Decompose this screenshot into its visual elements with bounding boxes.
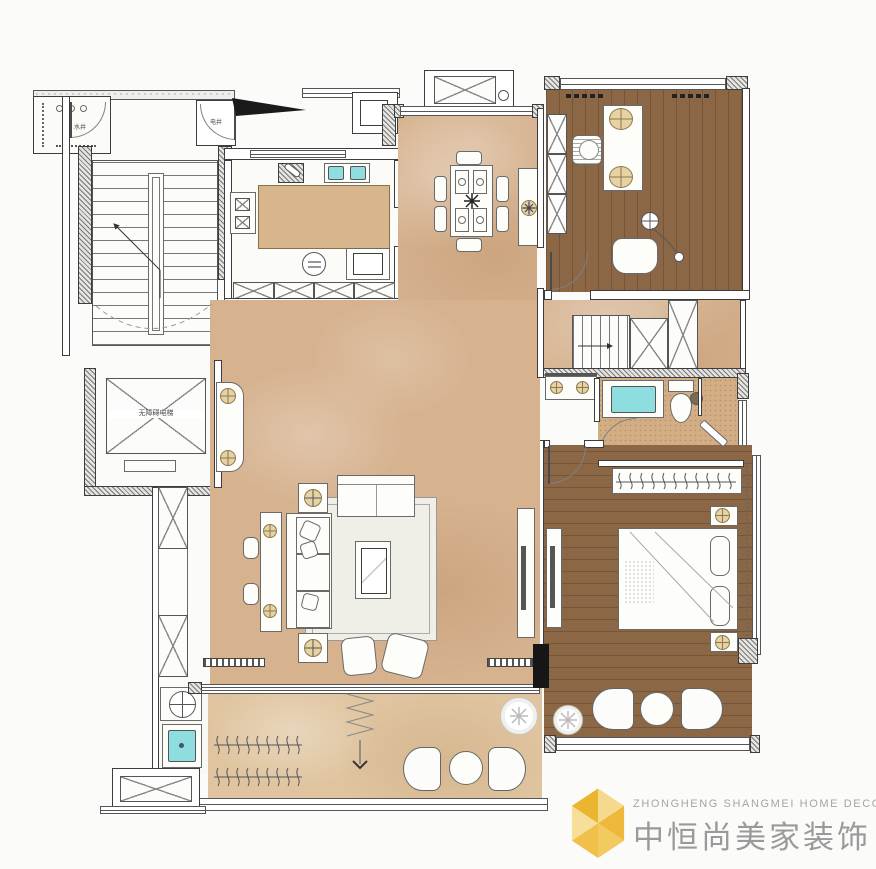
inner-hallway xyxy=(540,300,750,375)
wardrobe xyxy=(612,468,742,494)
dining-study-wall xyxy=(537,108,544,248)
dining-chair xyxy=(456,238,482,252)
placemat xyxy=(455,170,469,194)
bay-armchair xyxy=(681,688,723,730)
logo-diamond-icon xyxy=(569,786,627,864)
bedroom-wall xyxy=(750,735,760,753)
stairwell xyxy=(92,160,218,346)
loveseat-divider xyxy=(376,485,377,516)
study-wardrobe xyxy=(547,194,567,234)
bedroom-top-wall xyxy=(598,460,744,467)
storage-cabinet-door xyxy=(158,487,188,549)
master-bedroom xyxy=(536,440,760,755)
basin-icon xyxy=(550,381,563,394)
placemat xyxy=(455,208,469,232)
study-wardrobe xyxy=(547,114,567,154)
bathroom-partition xyxy=(594,378,600,422)
structural-column xyxy=(533,644,549,688)
flower-plant-icon xyxy=(553,705,583,735)
study-window xyxy=(560,78,726,90)
plant-icon xyxy=(263,604,277,618)
exterior-sill xyxy=(100,806,206,814)
curtain-box xyxy=(487,658,533,667)
dining-chair xyxy=(434,206,447,232)
elevator-door xyxy=(124,460,176,472)
ac-fan-icon xyxy=(498,90,509,101)
stool xyxy=(243,583,259,605)
plant-icon xyxy=(609,108,633,130)
unit-entry-door-leaf xyxy=(234,104,236,140)
lounge-chair xyxy=(403,747,441,791)
placemat xyxy=(473,208,487,232)
logo-text-en: ZHONGHENG SHANGMEI HOME DECORATION xyxy=(633,798,876,810)
refrigerator xyxy=(346,248,390,280)
study-bottom-wall xyxy=(590,290,750,300)
sofa xyxy=(286,513,332,629)
lamp-base-icon xyxy=(674,252,684,262)
plate-icon xyxy=(476,178,484,186)
living-hall-wall xyxy=(537,288,544,378)
drain-icon xyxy=(179,743,184,748)
ac-unit xyxy=(434,76,496,104)
floor-plan-canvas: 水井 电井 无障碍电梯 xyxy=(0,0,876,869)
dining-room xyxy=(398,106,540,302)
placemat xyxy=(473,170,487,194)
balcony-table xyxy=(449,751,483,785)
floor-lamp-icon xyxy=(641,212,659,230)
toilet-tank xyxy=(668,380,694,392)
sliding-door-track xyxy=(200,684,540,694)
dining-chair xyxy=(496,206,509,232)
balcony xyxy=(150,680,548,812)
storage-cabinet-door xyxy=(158,615,188,677)
bath-wall xyxy=(737,373,749,399)
desk-chair xyxy=(572,135,602,165)
loveseat-back xyxy=(338,476,414,485)
double-basin-vanity xyxy=(545,376,597,400)
exterior-wall xyxy=(62,96,70,356)
logo-text-cn: 中恒尚美家装饰 xyxy=(633,812,871,857)
laundry-sink xyxy=(162,724,202,768)
kitchen-window xyxy=(250,150,346,158)
stool xyxy=(243,537,259,559)
curtain-box xyxy=(203,658,265,667)
sink-basin xyxy=(328,166,344,180)
kitchen xyxy=(224,148,400,306)
common-corridor: 水井 电井 无障碍电梯 xyxy=(30,86,235,496)
plate-icon xyxy=(476,216,484,224)
washbasin-counter xyxy=(602,380,664,418)
tv-cabinet xyxy=(517,508,535,638)
dining-chair xyxy=(496,176,509,202)
bedroom-top-wall xyxy=(584,440,604,448)
plant-icon xyxy=(304,489,322,507)
living-room xyxy=(210,300,540,690)
pillow xyxy=(710,536,730,576)
bedroom-bay-window xyxy=(556,737,750,751)
basin-oval xyxy=(611,386,656,413)
corridor-door-leaf xyxy=(70,102,72,138)
ac-unit xyxy=(120,776,192,802)
study-wardrobe xyxy=(547,154,567,194)
hall-closet xyxy=(630,318,668,370)
bedroom-side-window xyxy=(752,455,761,655)
bay-table xyxy=(640,692,674,726)
loveseat xyxy=(337,475,415,517)
kitchen-island xyxy=(258,185,390,249)
plant-icon xyxy=(715,508,730,523)
stamp-text-mark xyxy=(308,266,321,268)
lounge-chair xyxy=(488,747,526,791)
bay-armchair xyxy=(592,688,634,730)
study-door-leaf xyxy=(550,252,552,290)
plate-icon xyxy=(458,216,466,224)
interior-staircase xyxy=(572,315,630,371)
cutting-board xyxy=(278,163,304,183)
burner-icon xyxy=(235,198,250,211)
balcony-window xyxy=(198,798,548,811)
tv-icon xyxy=(550,546,555,608)
stairwell-wall xyxy=(78,146,92,304)
washer-drum-icon xyxy=(169,691,196,718)
coffee-table xyxy=(355,541,391,599)
study-bottom-wall xyxy=(544,290,552,300)
double-sink xyxy=(324,163,370,183)
cooktop xyxy=(230,192,256,234)
burner-icon xyxy=(235,216,250,229)
hall-closet xyxy=(668,300,698,370)
sofa-cushion xyxy=(296,554,330,591)
plant-icon xyxy=(609,166,633,188)
corner-column xyxy=(544,76,560,90)
tv-icon xyxy=(521,546,526,610)
decor-icon xyxy=(220,450,236,466)
ottoman xyxy=(340,635,378,676)
elevator-label: 无障碍电梯 xyxy=(108,410,204,418)
bedroom-door-leaf xyxy=(548,446,550,484)
blanket-texture xyxy=(624,560,654,604)
refrigerator-inner xyxy=(353,253,383,275)
coffee-table-top xyxy=(361,548,387,594)
dining-chair xyxy=(456,151,482,165)
decor-icon xyxy=(220,388,236,404)
shower-partition xyxy=(698,378,702,416)
stair-rail xyxy=(148,173,164,335)
plant-icon xyxy=(304,639,322,657)
curtain-icon xyxy=(746,462,750,640)
wall-pier xyxy=(188,682,202,694)
company-logo: ZHONGHENG SHANGMEI HOME DECORATION 中恒尚美家… xyxy=(565,780,870,868)
plant-icon xyxy=(521,200,537,216)
bedroom-wall xyxy=(738,638,758,664)
material-stamp-icon xyxy=(302,252,326,276)
elevator-wall xyxy=(84,368,96,490)
pipe-coil-icon xyxy=(42,103,49,147)
potted-plant-icon xyxy=(500,697,538,735)
section-marker xyxy=(232,98,306,116)
hall-right-wall xyxy=(740,300,746,370)
study-room xyxy=(544,76,750,300)
stamp-text-mark xyxy=(308,261,321,263)
plant-icon xyxy=(263,524,277,538)
dining-window xyxy=(400,106,540,116)
plant-icon xyxy=(715,635,730,650)
dining-chair xyxy=(434,176,447,202)
basin-icon xyxy=(576,381,589,394)
armchair xyxy=(612,238,658,274)
pillow xyxy=(710,586,730,626)
chair-seat xyxy=(579,140,599,160)
sink-basin xyxy=(350,166,366,180)
plate-icon xyxy=(458,178,466,186)
study-right-wall xyxy=(742,88,750,292)
